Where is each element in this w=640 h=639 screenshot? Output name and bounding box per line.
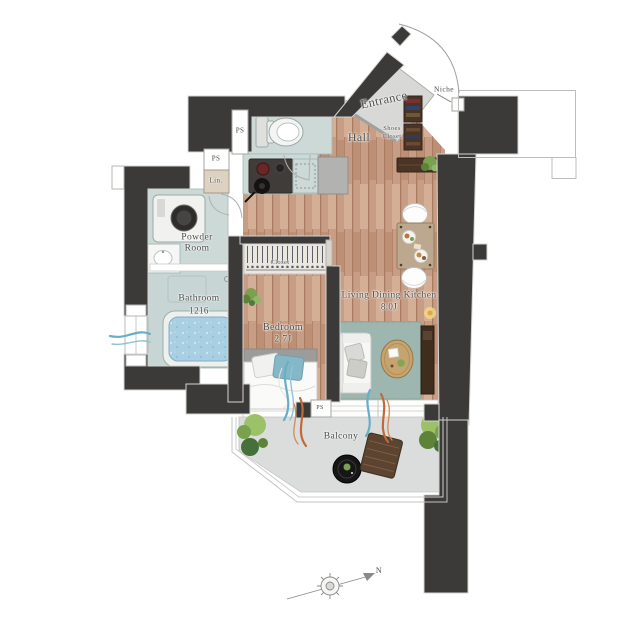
label-powder-line1: Powder — [181, 233, 212, 243]
label-hall: Hall — [348, 131, 370, 143]
label-powder-line2: Room — [185, 244, 210, 254]
compass-icon — [287, 573, 375, 599]
label-bedroom: Bedroom — [263, 323, 303, 333]
bath-sliding-door — [150, 264, 238, 271]
wall-bedroom-ldk — [326, 266, 340, 402]
label-bathroom-size: 1216 — [189, 307, 209, 316]
label-linen: Lin. — [209, 178, 222, 185]
wall-end-cap — [112, 166, 124, 189]
label-ldk: Living Dining Kitchen — [342, 291, 437, 301]
label-ps-balcony: PS — [316, 405, 323, 411]
wall-bedroom-left — [228, 236, 243, 402]
tv-board-icon — [421, 326, 434, 394]
label-shoes-closet-line1: Shoes — [383, 126, 401, 133]
dining-chair-icon — [402, 268, 427, 289]
wall-right — [437, 154, 476, 425]
window-end-cap — [126, 305, 146, 316]
floor-plan-drawing — [0, 0, 640, 639]
neighbor-outline-step — [552, 158, 576, 179]
label-ldk-size: 8.0J — [381, 303, 397, 312]
window-end-cap — [126, 355, 146, 366]
coffee-table-icon — [381, 340, 413, 378]
balcony-table-icon — [333, 455, 361, 483]
label-ps-wc: PS — [236, 128, 245, 135]
label-bathroom: Bathroom — [178, 294, 219, 304]
label-ps-upper: PS — [212, 156, 221, 163]
label-compass-north: N — [376, 567, 382, 575]
floor-plan-canvas: Entrance Niche Hall Shoes Closet PS PS L… — [0, 0, 640, 639]
dining-chair-icon — [403, 204, 428, 225]
wall-top-right-block — [458, 96, 518, 154]
dining-table-icon — [397, 223, 434, 269]
label-shoes-closet-line2: Closet — [382, 134, 401, 141]
wall-door-jamb — [391, 26, 411, 46]
wall-right-notch — [473, 244, 487, 260]
label-niche: Niche — [434, 85, 454, 93]
label-bedroom-size: 2.7J — [274, 335, 291, 345]
wall-balcony-pier — [424, 404, 439, 421]
niche-pointer-line — [437, 94, 451, 102]
bathtub-icon — [163, 311, 238, 367]
label-closet: Closet — [270, 260, 289, 267]
sliding-panel — [326, 240, 332, 266]
kitchen-counter-icon — [318, 157, 348, 194]
bed-icon — [244, 349, 317, 409]
label-balcony: Balcony — [324, 432, 358, 442]
toilet-icon — [256, 117, 303, 147]
wall-closet-top — [240, 236, 330, 244]
